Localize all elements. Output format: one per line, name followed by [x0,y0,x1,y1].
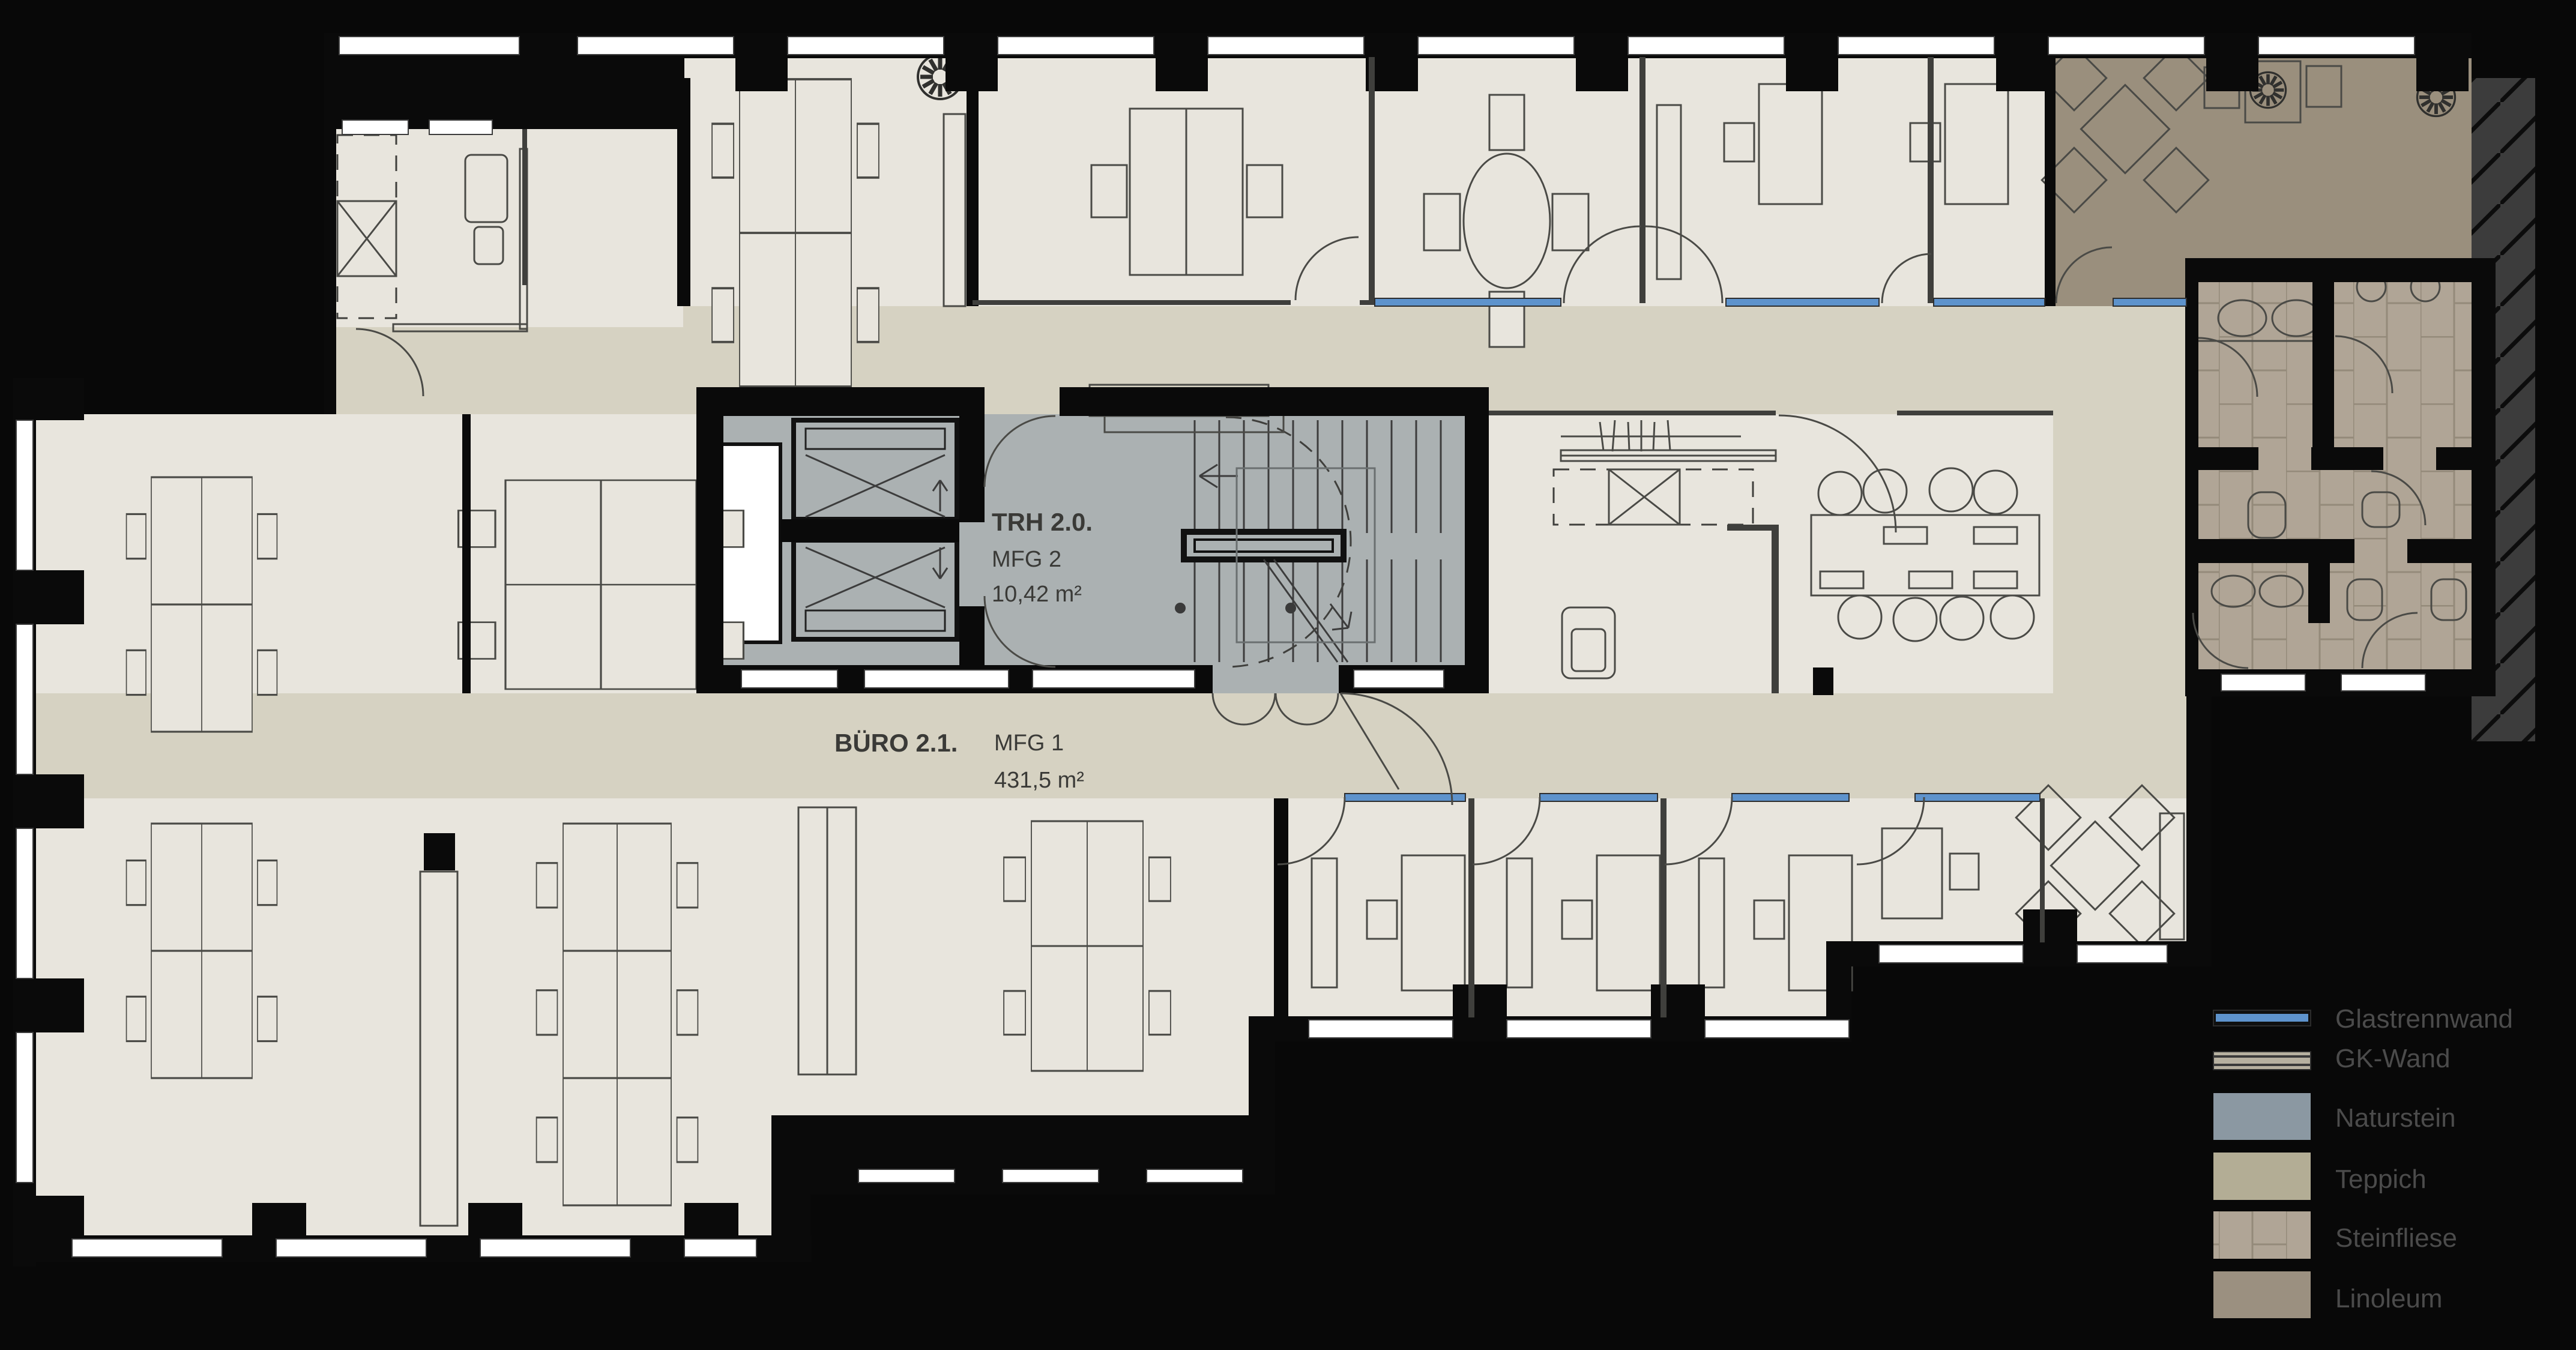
legend-swatch-glass-line [2216,1014,2308,1022]
main-corridor-floor [36,693,2186,798]
chair [1950,854,1979,890]
legend-label: Steinfliese [2335,1223,2457,1253]
room-name-office: BÜRO 2.1. [834,729,958,757]
glass-wall [1345,794,1465,801]
glass-wall [2113,298,2186,306]
room-unit-office: MFG 1 [994,731,1064,756]
legend-swatch-steinfliese [2213,1211,2311,1259]
room-area-stairwell: 10,42 m² [992,582,1082,607]
legend-swatch-teppich [2213,1153,2311,1200]
desk [1882,828,1942,918]
elevator-icon [794,540,957,639]
room-area-office: 431,5 m² [994,768,1084,793]
legend-label: Glastrennwand [2335,1004,2513,1034]
glass-wall [1915,794,2040,801]
glass-wall [1540,794,1658,801]
room-unit-stairwell: MFG 2 [992,547,1061,572]
elevator-icon [794,420,957,519]
legend-label: GK-Wand [2335,1044,2451,1073]
top-offices-floor [683,57,2053,306]
desk [1945,84,2008,204]
glass-wall [1934,298,2045,306]
legend-swatch-naturstein [2213,1093,2311,1140]
desk [1759,84,1822,204]
legend-swatch-linoleum [2213,1271,2311,1318]
floor-plan-canvas: TRH 2.0. MFG 2 10,42 m² BÜRO 2.1. MFG 1 … [0,0,2576,1350]
legend-label: Naturstein [2335,1103,2456,1133]
chair [1910,123,1940,161]
room-annex-floor [336,129,683,327]
legend-swatch-gk [2213,1052,2311,1070]
room-name-stairwell: TRH 2.0. [992,508,1093,536]
glass-wall [1726,298,1879,306]
chair [1724,123,1754,161]
armchair [465,155,507,222]
floor-plan-page: TRH 2.0. MFG 2 10,42 m² BÜRO 2.1. MFG 1 … [0,0,2576,1350]
glass-wall [1732,794,1849,801]
legend-label: Linoleum [2335,1284,2443,1313]
glass-wall [1375,298,1561,306]
legend-label: Teppich [2335,1165,2427,1194]
